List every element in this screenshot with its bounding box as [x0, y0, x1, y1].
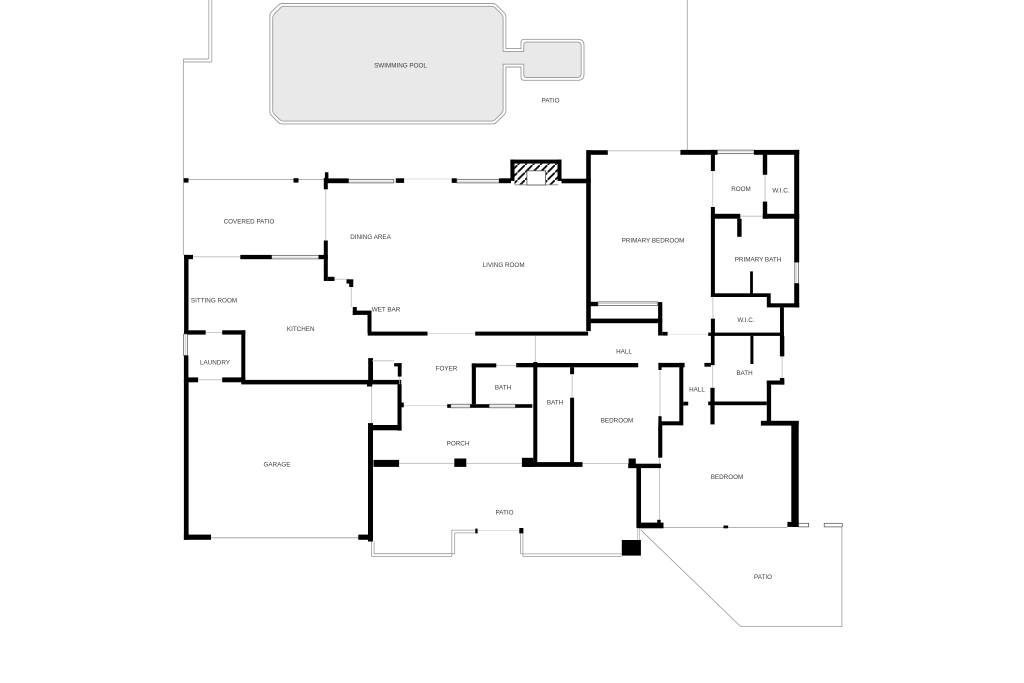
- svg-text:W.I.C.: W.I.C.: [772, 187, 789, 194]
- svg-text:PORCH: PORCH: [447, 440, 470, 447]
- svg-text:KITCHEN: KITCHEN: [287, 326, 315, 333]
- svg-text:BEDROOM: BEDROOM: [601, 417, 634, 424]
- svg-text:FOYER: FOYER: [436, 365, 458, 372]
- svg-text:BATH: BATH: [495, 384, 512, 391]
- svg-text:LAUNDRY: LAUNDRY: [200, 359, 231, 366]
- svg-text:BATH: BATH: [736, 370, 753, 377]
- svg-text:BATH: BATH: [547, 400, 564, 407]
- svg-text:HALL: HALL: [689, 387, 705, 394]
- svg-text:COVERED PATIO: COVERED PATIO: [224, 219, 275, 226]
- svg-text:PATIO: PATIO: [496, 510, 514, 517]
- svg-text:DINING AREA: DINING AREA: [350, 234, 391, 241]
- svg-text:PATIO: PATIO: [542, 97, 560, 104]
- svg-text:SITTING ROOM: SITTING ROOM: [191, 298, 237, 305]
- svg-text:W.I.C.: W.I.C.: [737, 317, 754, 324]
- svg-text:BEDROOM: BEDROOM: [711, 474, 744, 481]
- svg-text:GARAGE: GARAGE: [264, 462, 291, 469]
- svg-text:PATIO: PATIO: [754, 574, 772, 581]
- svg-text:WET BAR: WET BAR: [372, 306, 401, 313]
- svg-text:HALL: HALL: [616, 348, 632, 355]
- svg-text:PRIMARY BEDROOM: PRIMARY BEDROOM: [622, 237, 685, 244]
- svg-text:PRIMARY BATH: PRIMARY BATH: [735, 256, 782, 263]
- svg-text:LIVING ROOM: LIVING ROOM: [483, 262, 525, 269]
- svg-text:ROOM: ROOM: [731, 186, 751, 193]
- svg-text:SWIMMING POOL: SWIMMING POOL: [374, 63, 427, 70]
